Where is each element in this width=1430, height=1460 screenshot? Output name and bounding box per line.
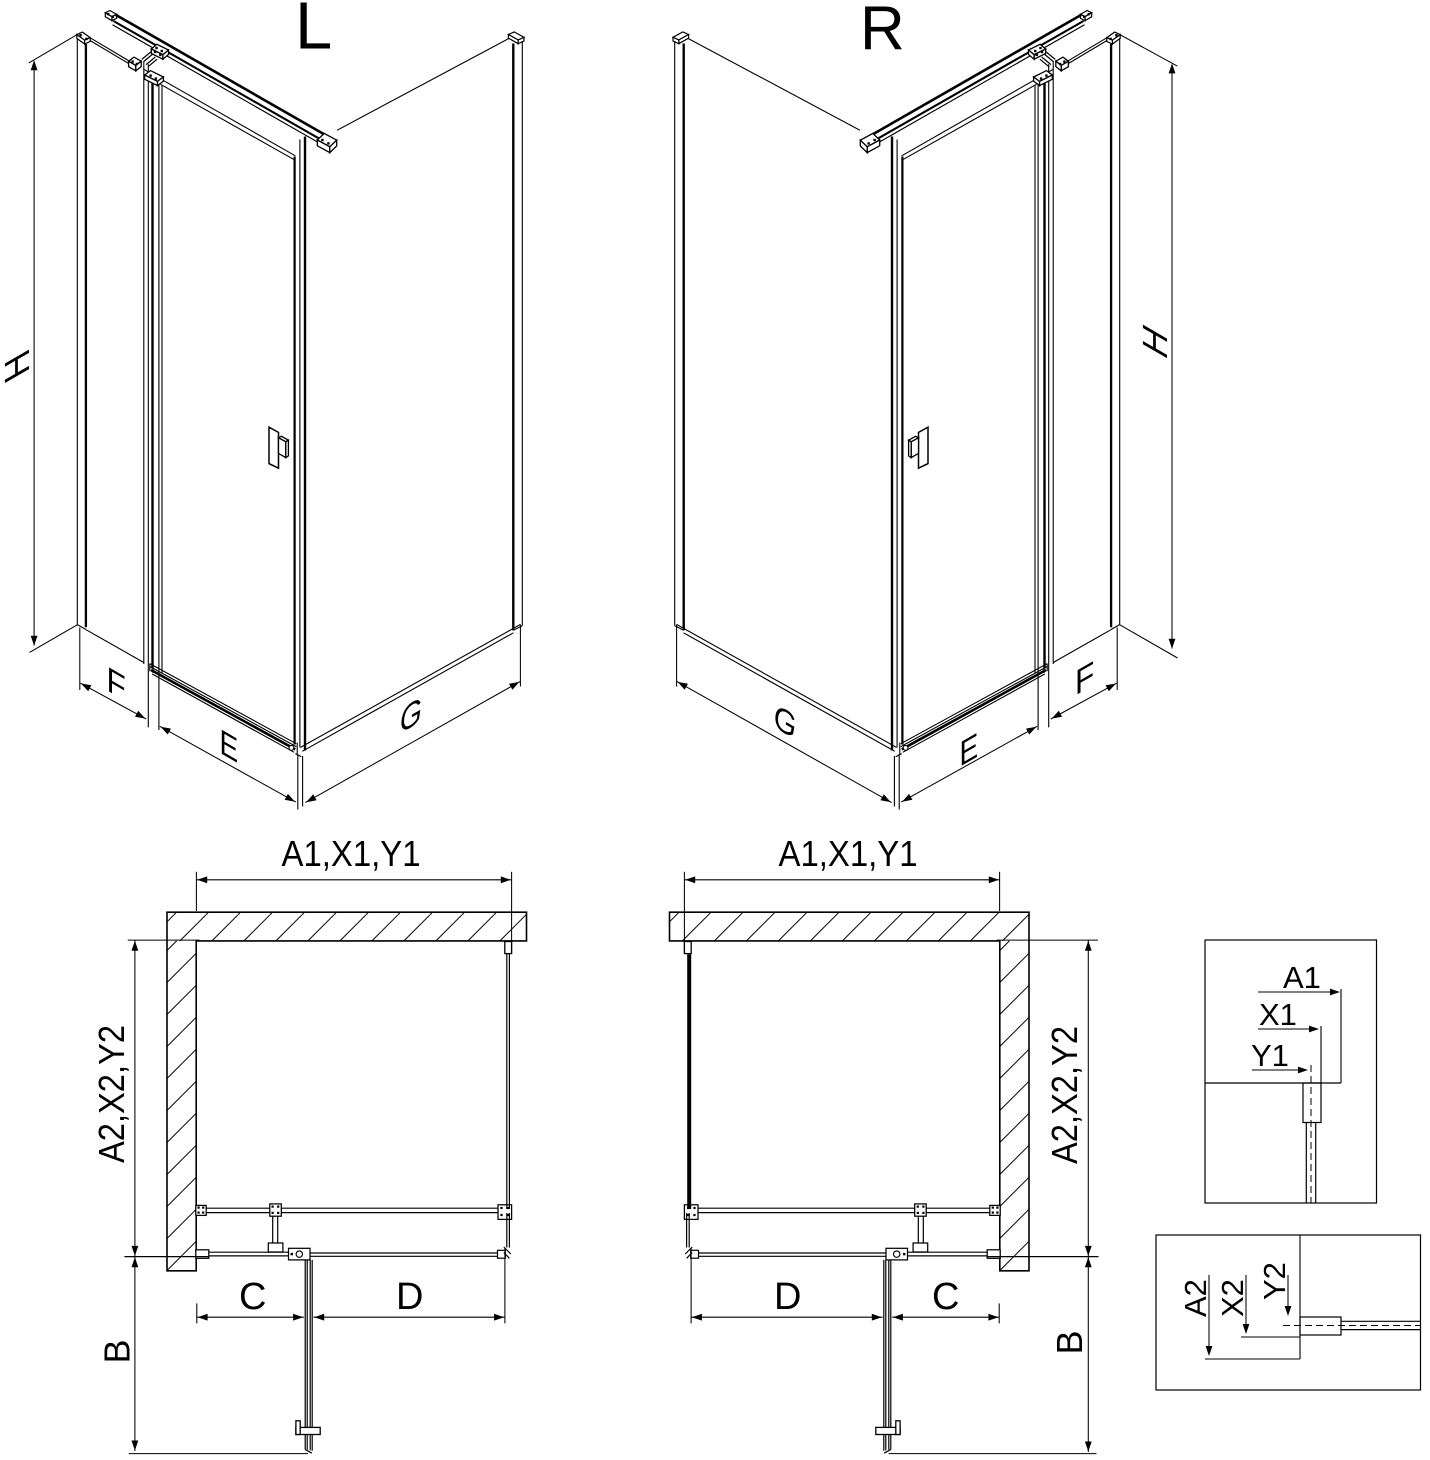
svg-text:D: D [396, 1276, 423, 1318]
svg-text:X1: X1 [1259, 997, 1297, 1032]
svg-text:D: D [774, 1276, 801, 1318]
svg-text:B: B [1049, 1330, 1090, 1354]
svg-text:A2: A2 [1178, 1279, 1213, 1317]
svg-text:A2,X2,Y2: A2,X2,Y2 [1044, 1026, 1085, 1164]
svg-text:A2,X2,Y2: A2,X2,Y2 [91, 1025, 132, 1163]
svg-text:B: B [97, 1339, 138, 1363]
svg-text:A1,X1,Y1: A1,X1,Y1 [779, 833, 918, 874]
svg-text:C: C [932, 1276, 959, 1318]
svg-text:Y2: Y2 [1257, 1262, 1292, 1300]
svg-text:R: R [860, 0, 905, 64]
svg-text:A1,X1,Y1: A1,X1,Y1 [282, 833, 421, 874]
svg-text:X2: X2 [1215, 1279, 1250, 1317]
svg-text:L: L [295, 0, 332, 64]
svg-text:A1: A1 [1283, 960, 1321, 995]
svg-text:C: C [239, 1276, 266, 1318]
svg-text:Y1: Y1 [1251, 1038, 1289, 1073]
